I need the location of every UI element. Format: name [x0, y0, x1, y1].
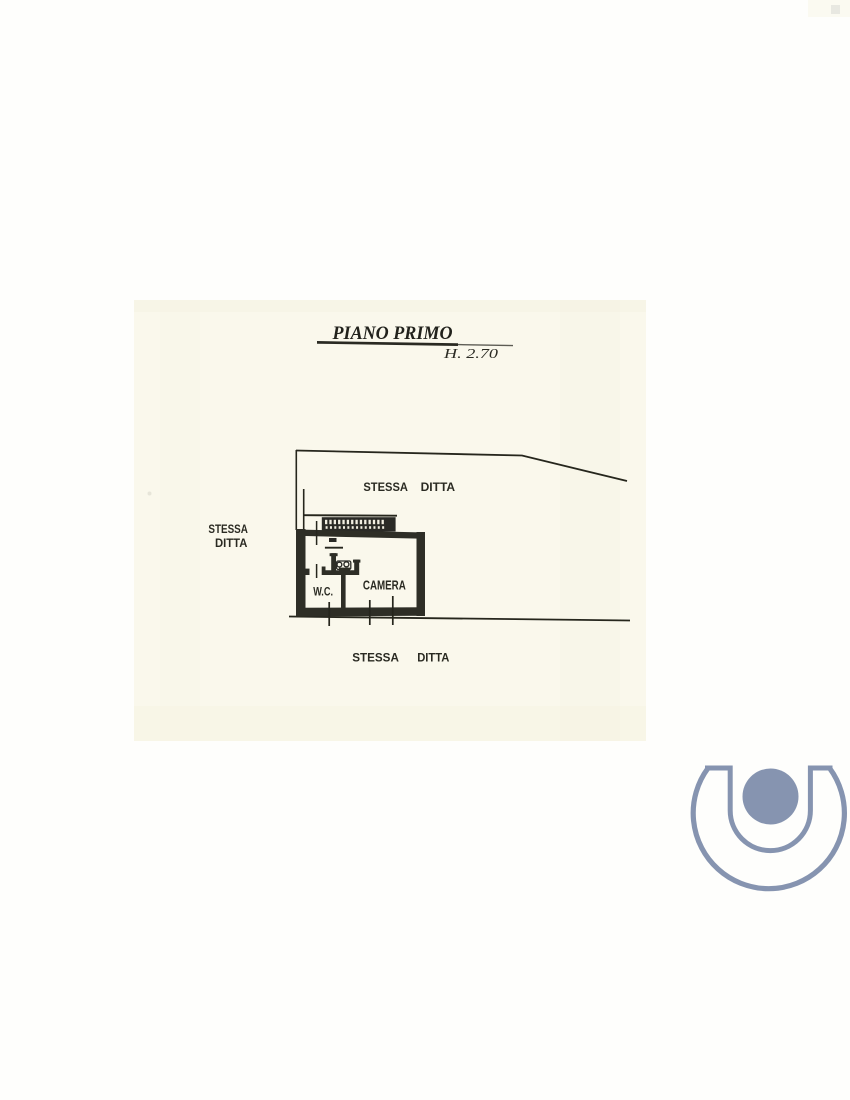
- svg-text:H. 2.70: H. 2.70: [443, 346, 499, 361]
- svg-text:CAMERA: CAMERA: [363, 579, 406, 593]
- svg-text:STESSA: STESSA: [208, 524, 248, 536]
- svg-text:W.C.: W.C.: [313, 587, 333, 599]
- svg-text:DITTA: DITTA: [417, 650, 450, 664]
- svg-text:DITTA: DITTA: [421, 480, 456, 494]
- svg-text:PIANO PRIMO: PIANO PRIMO: [332, 323, 453, 344]
- svg-text:STESSA: STESSA: [352, 650, 399, 664]
- svg-text:DITTA: DITTA: [215, 538, 247, 550]
- svg-text:STESSA: STESSA: [363, 480, 408, 494]
